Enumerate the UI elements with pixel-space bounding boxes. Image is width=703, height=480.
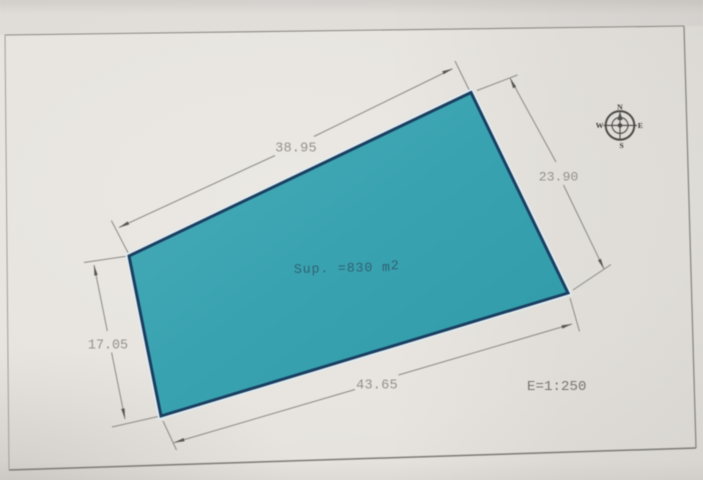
svg-text:E=1:250: E=1:250 — [527, 379, 587, 395]
svg-text:S: S — [619, 141, 623, 150]
svg-text:23.90: 23.90 — [539, 170, 579, 185]
svg-text:E: E — [638, 121, 643, 130]
svg-text:W: W — [596, 121, 604, 130]
svg-text:N: N — [617, 103, 623, 112]
svg-text:Sup. =830 m2: Sup. =830 m2 — [294, 258, 400, 277]
svg-text:17.05: 17.05 — [88, 339, 128, 354]
svg-text:38.95: 38.95 — [275, 142, 317, 157]
svg-text:43.65: 43.65 — [356, 379, 398, 394]
